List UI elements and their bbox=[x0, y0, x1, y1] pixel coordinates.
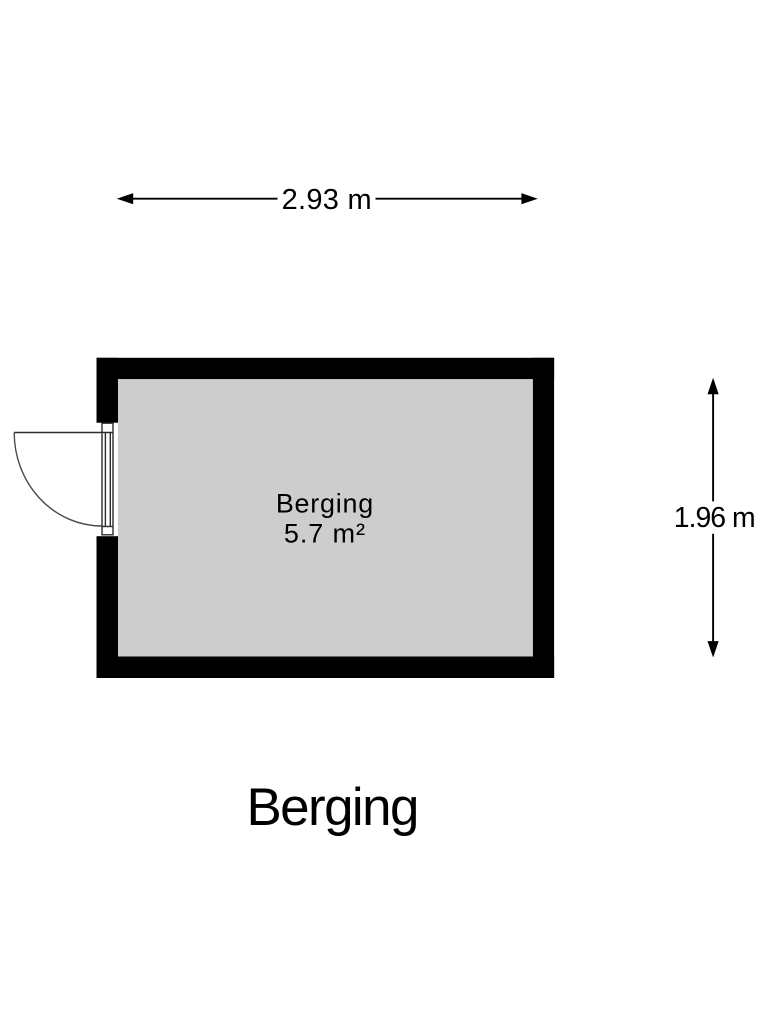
svg-text:2.93 m: 2.93 m bbox=[282, 184, 372, 216]
svg-text:Berging: Berging bbox=[246, 778, 417, 837]
svg-text:1.96 m: 1.96 m bbox=[674, 502, 755, 534]
svg-text:5.7 m²: 5.7 m² bbox=[284, 517, 366, 548]
svg-text:Berging: Berging bbox=[276, 488, 374, 518]
